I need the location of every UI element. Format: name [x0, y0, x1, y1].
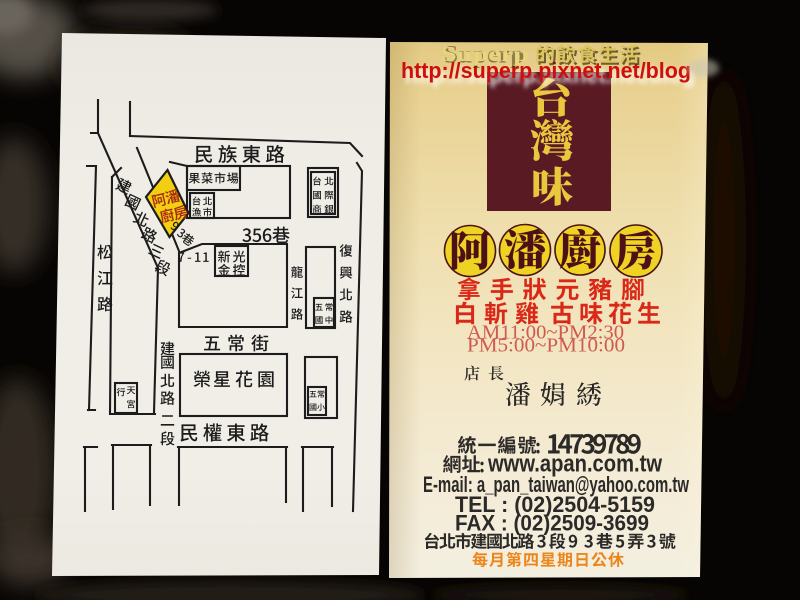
- svg-text:FAX : (02)2509-3699: FAX : (02)2509-3699: [455, 511, 649, 536]
- svg-text:Superp: Superp: [441, 42, 529, 66]
- svg-text:PM5:00~PM10:00: PM5:00~PM10:00: [467, 335, 625, 357]
